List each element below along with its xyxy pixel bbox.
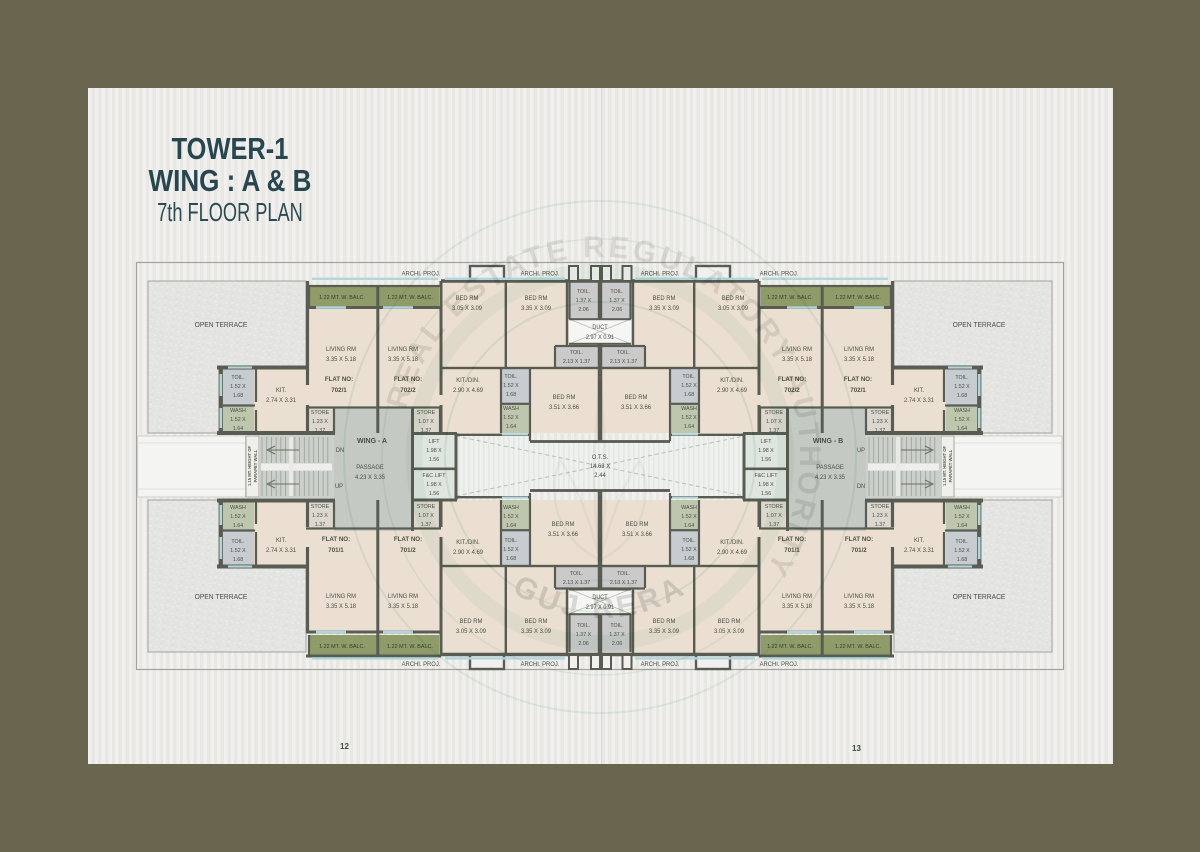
- svg-text:1.22 MT. W. BALC.: 1.22 MT. W. BALC.: [319, 295, 365, 301]
- svg-text:1.15 MT. HEIGHT OFPARAPET WALL: 1.15 MT. HEIGHT OFPARAPET WALL: [942, 446, 953, 486]
- svg-text:DN: DN: [336, 448, 344, 454]
- svg-text:OPEN TERRACE: OPEN TERRACE: [195, 322, 248, 329]
- svg-text:1.22 MT. W. BALC.: 1.22 MT. W. BALC.: [835, 295, 881, 301]
- svg-text:DN: DN: [857, 484, 865, 490]
- svg-text:1.15 MT. HEIGHT OFPARAPET WALL: 1.15 MT. HEIGHT OFPARAPET WALL: [247, 446, 258, 486]
- svg-text:1.22 MT. W. BALC.: 1.22 MT. W. BALC.: [835, 644, 881, 650]
- svg-text:1.22 MT. W. BALC.: 1.22 MT. W. BALC.: [767, 295, 813, 301]
- svg-text:OPEN TERRACE: OPEN TERRACE: [953, 594, 1006, 601]
- svg-text:UP: UP: [857, 448, 865, 454]
- svg-text:ARCHI. PROJ.: ARCHI. PROJ.: [760, 661, 799, 668]
- svg-text:1.22 MT. W. BALC.: 1.22 MT. W. BALC.: [319, 644, 365, 650]
- svg-text:1.22 MT. W. BALC.: 1.22 MT. W. BALC.: [387, 295, 433, 301]
- svg-text:OPEN TERRACE: OPEN TERRACE: [953, 322, 1006, 329]
- svg-text:ARCHI. PROJ.: ARCHI. PROJ.: [402, 661, 441, 668]
- svg-text:UP: UP: [335, 484, 343, 490]
- svg-text:OPEN TERRACE: OPEN TERRACE: [195, 594, 248, 601]
